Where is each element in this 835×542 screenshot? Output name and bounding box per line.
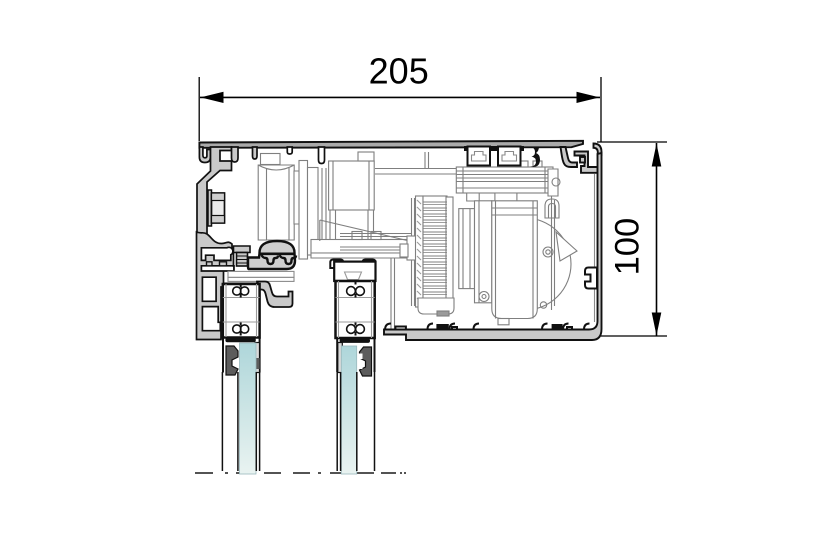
svg-text:205: 205 bbox=[369, 51, 429, 92]
svg-text:100: 100 bbox=[609, 218, 647, 276]
